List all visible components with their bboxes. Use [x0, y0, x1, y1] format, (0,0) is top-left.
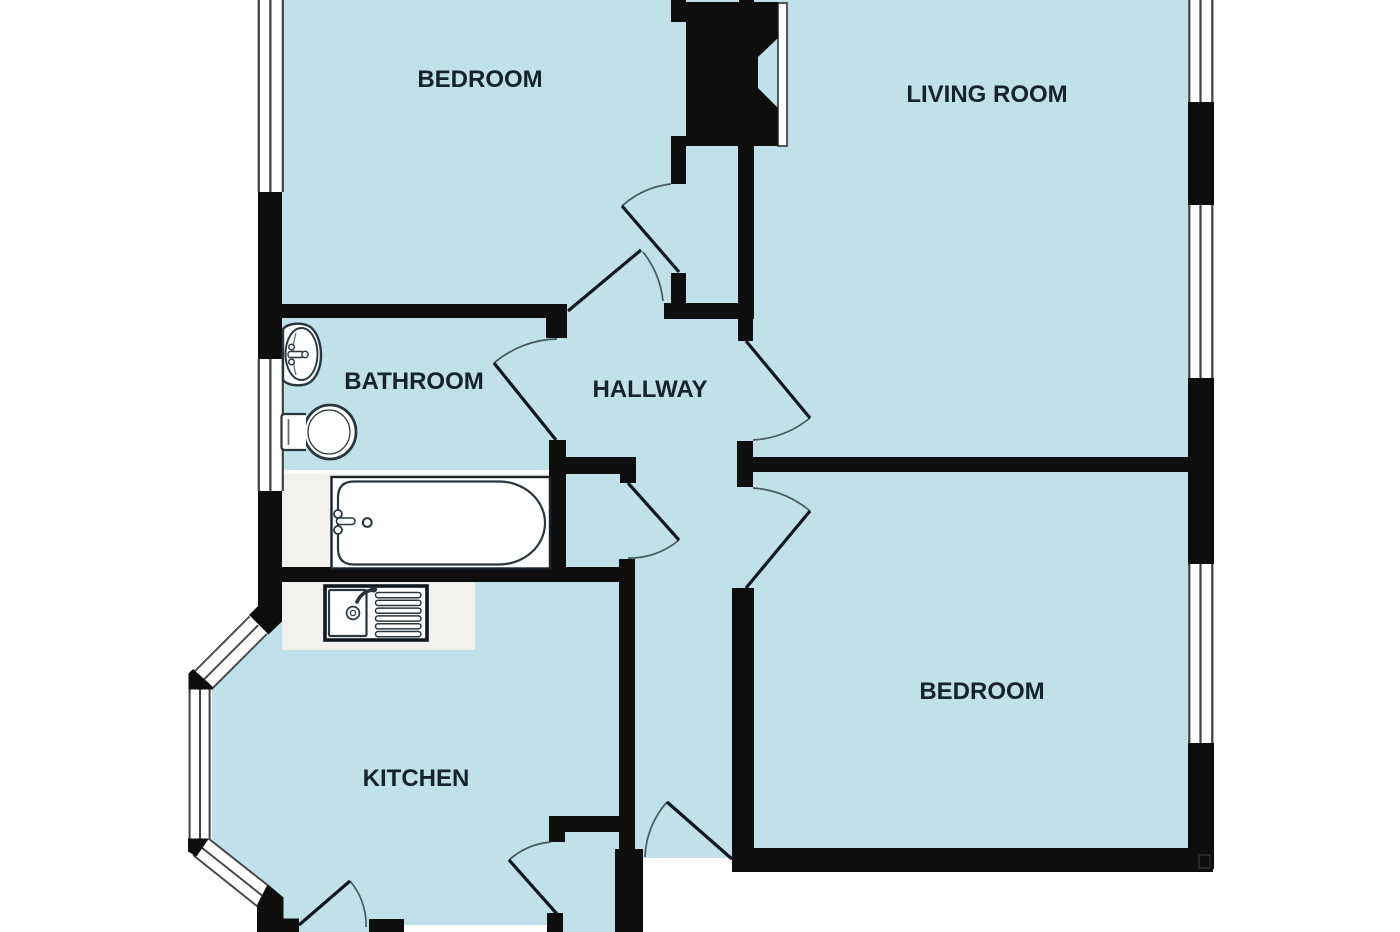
svg-text:BEDROOM: BEDROOM [919, 678, 1044, 705]
svg-text:HALLWAY: HALLWAY [592, 376, 707, 403]
svg-text:BATHROOM: BATHROOM [344, 368, 484, 395]
svg-text:KITCHEN: KITCHEN [363, 765, 470, 792]
svg-text:BEDROOM: BEDROOM [417, 66, 542, 93]
svg-text:LIVING ROOM: LIVING ROOM [906, 81, 1067, 108]
